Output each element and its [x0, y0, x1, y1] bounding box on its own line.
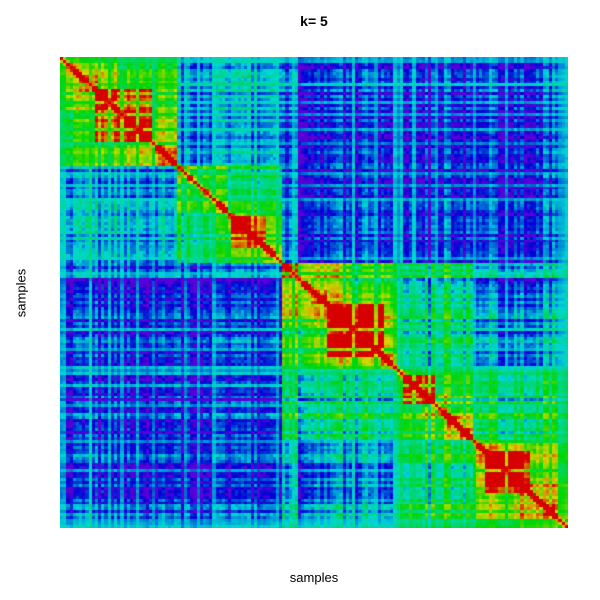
consensus-heatmap-figure: k= 5 samples samples — [0, 0, 600, 600]
chart-title: k= 5 — [60, 13, 568, 29]
y-axis-label: samples — [14, 269, 29, 317]
x-axis-label: samples — [60, 570, 568, 585]
consensus-heatmap-canvas — [60, 57, 568, 528]
